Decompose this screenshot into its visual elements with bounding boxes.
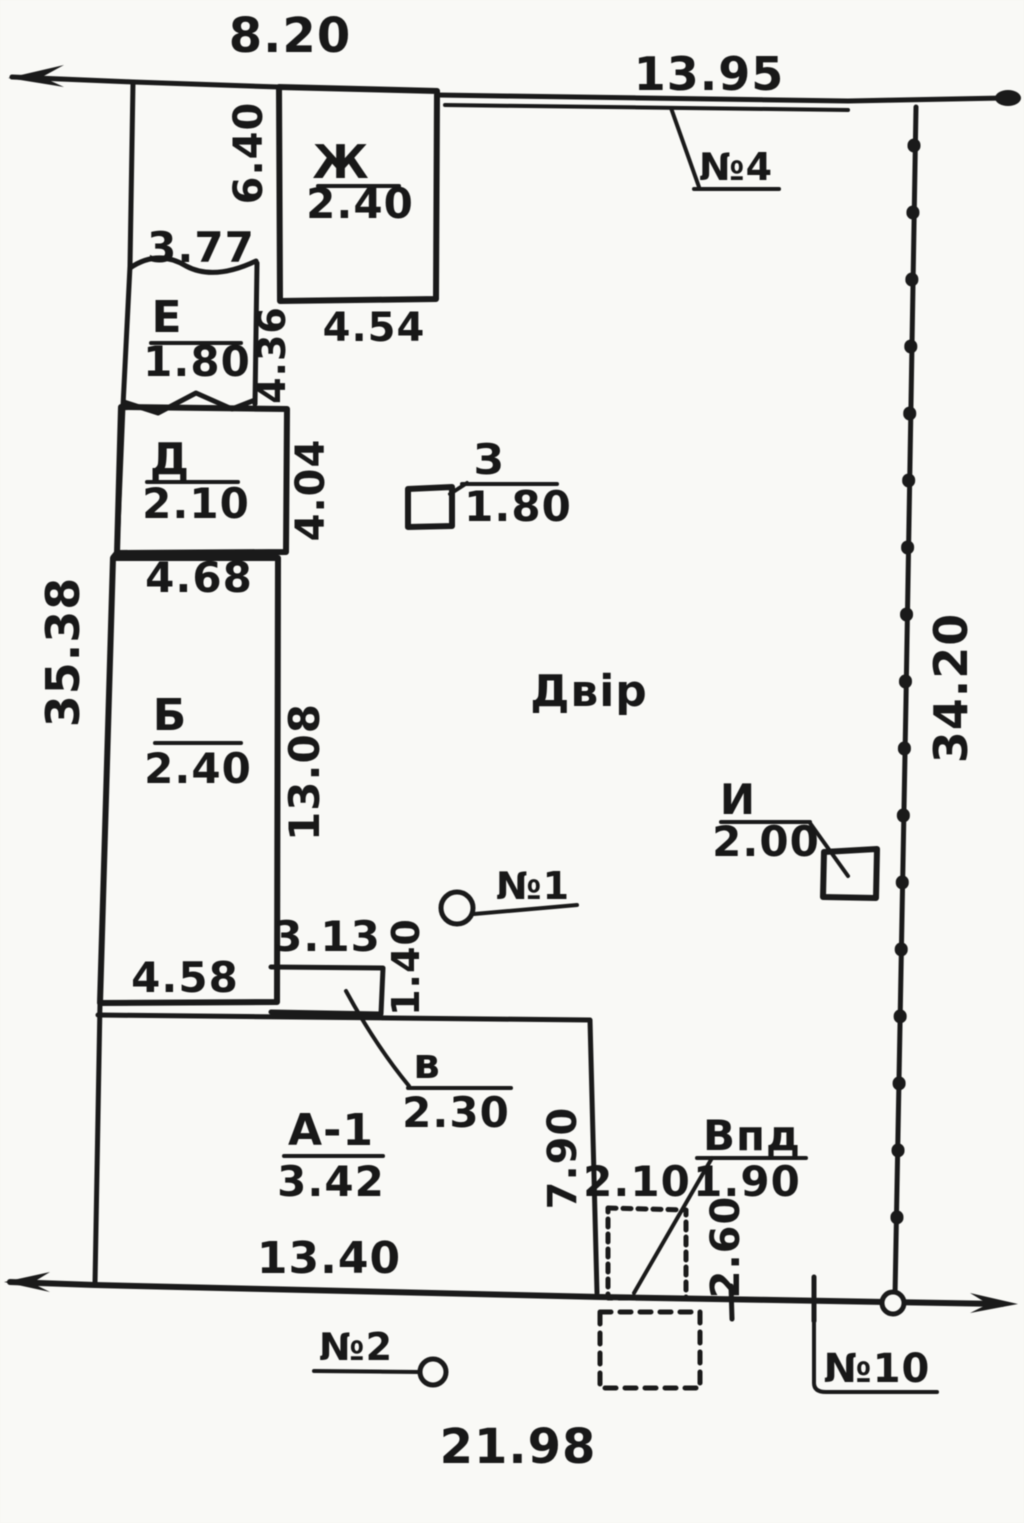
building-a1-value: 3.42 — [277, 1157, 385, 1206]
dim-left-side: 35.38 — [36, 577, 90, 728]
point10-label: №10 — [824, 1346, 931, 1392]
point1-label: №1 — [496, 864, 570, 908]
dim-a1-side: 7.90 — [540, 1107, 586, 1210]
dim-annex-depth: 1.40 — [384, 918, 428, 1016]
dim-vpd-side: 2.60 — [703, 1196, 749, 1299]
dim-top-width: 8.20 — [229, 8, 351, 64]
structure-z-letter: З — [474, 435, 505, 484]
dim-vpd-offset: 2.10 — [583, 1157, 691, 1206]
fence-end-node — [995, 90, 1021, 106]
dim-bottom-width: 21.98 — [440, 1419, 597, 1475]
dim-zh-side: 6.40 — [226, 102, 272, 205]
dim-shed-gap: 3.77 — [147, 223, 255, 272]
building-e-value: 1.80 — [143, 337, 251, 386]
dim-zh-width: 4.54 — [323, 305, 426, 351]
scanned-site-plan-page: 8.20 13.95 35.38 34.20 21.98 3.77 6.40 4… — [0, 0, 1024, 1523]
dim-b-width: 4.58 — [131, 953, 239, 1002]
building-e-letter: Е — [151, 292, 182, 343]
building-zh-value: 2.40 — [306, 179, 414, 228]
building-a1-letter: А-1 — [288, 1105, 374, 1156]
dim-a1-width: 13.40 — [257, 1233, 401, 1284]
dim-annex-width: 3.13 — [273, 912, 381, 961]
structure-v-value: 2.30 — [402, 1088, 510, 1137]
structure-z-value: 1.80 — [464, 482, 572, 531]
building-b-value: 2.40 — [144, 744, 252, 793]
boundary-node-circle — [882, 1292, 904, 1314]
dim-e-zh-gap: 4.36 — [250, 306, 294, 404]
structure-vpd-letter: Впд — [703, 1111, 801, 1160]
yard-label: Двір — [530, 666, 648, 717]
dim-d-width: 4.68 — [145, 553, 253, 602]
structure-vpd-value: 1.90 — [693, 1157, 801, 1206]
dim-street-front: 13.95 — [634, 47, 785, 101]
structure-v-letter: в — [413, 1039, 441, 1088]
point2-label: №2 — [319, 1325, 393, 1369]
point2-leader-line — [314, 1371, 419, 1372]
dim-right-side: 34.20 — [924, 613, 978, 764]
site-plan-svg: 8.20 13.95 35.38 34.20 21.98 3.77 6.40 4… — [0, 0, 1024, 1523]
dim-b-side: 13.08 — [280, 703, 329, 841]
structure-i-value: 2.00 — [712, 817, 820, 866]
building-d-letter: Д — [150, 434, 190, 485]
dim-d-side: 4.04 — [288, 439, 334, 542]
building-d-value: 2.10 — [142, 479, 250, 528]
building-b-letter: Б — [153, 690, 188, 741]
point4-label: №4 — [699, 145, 773, 189]
